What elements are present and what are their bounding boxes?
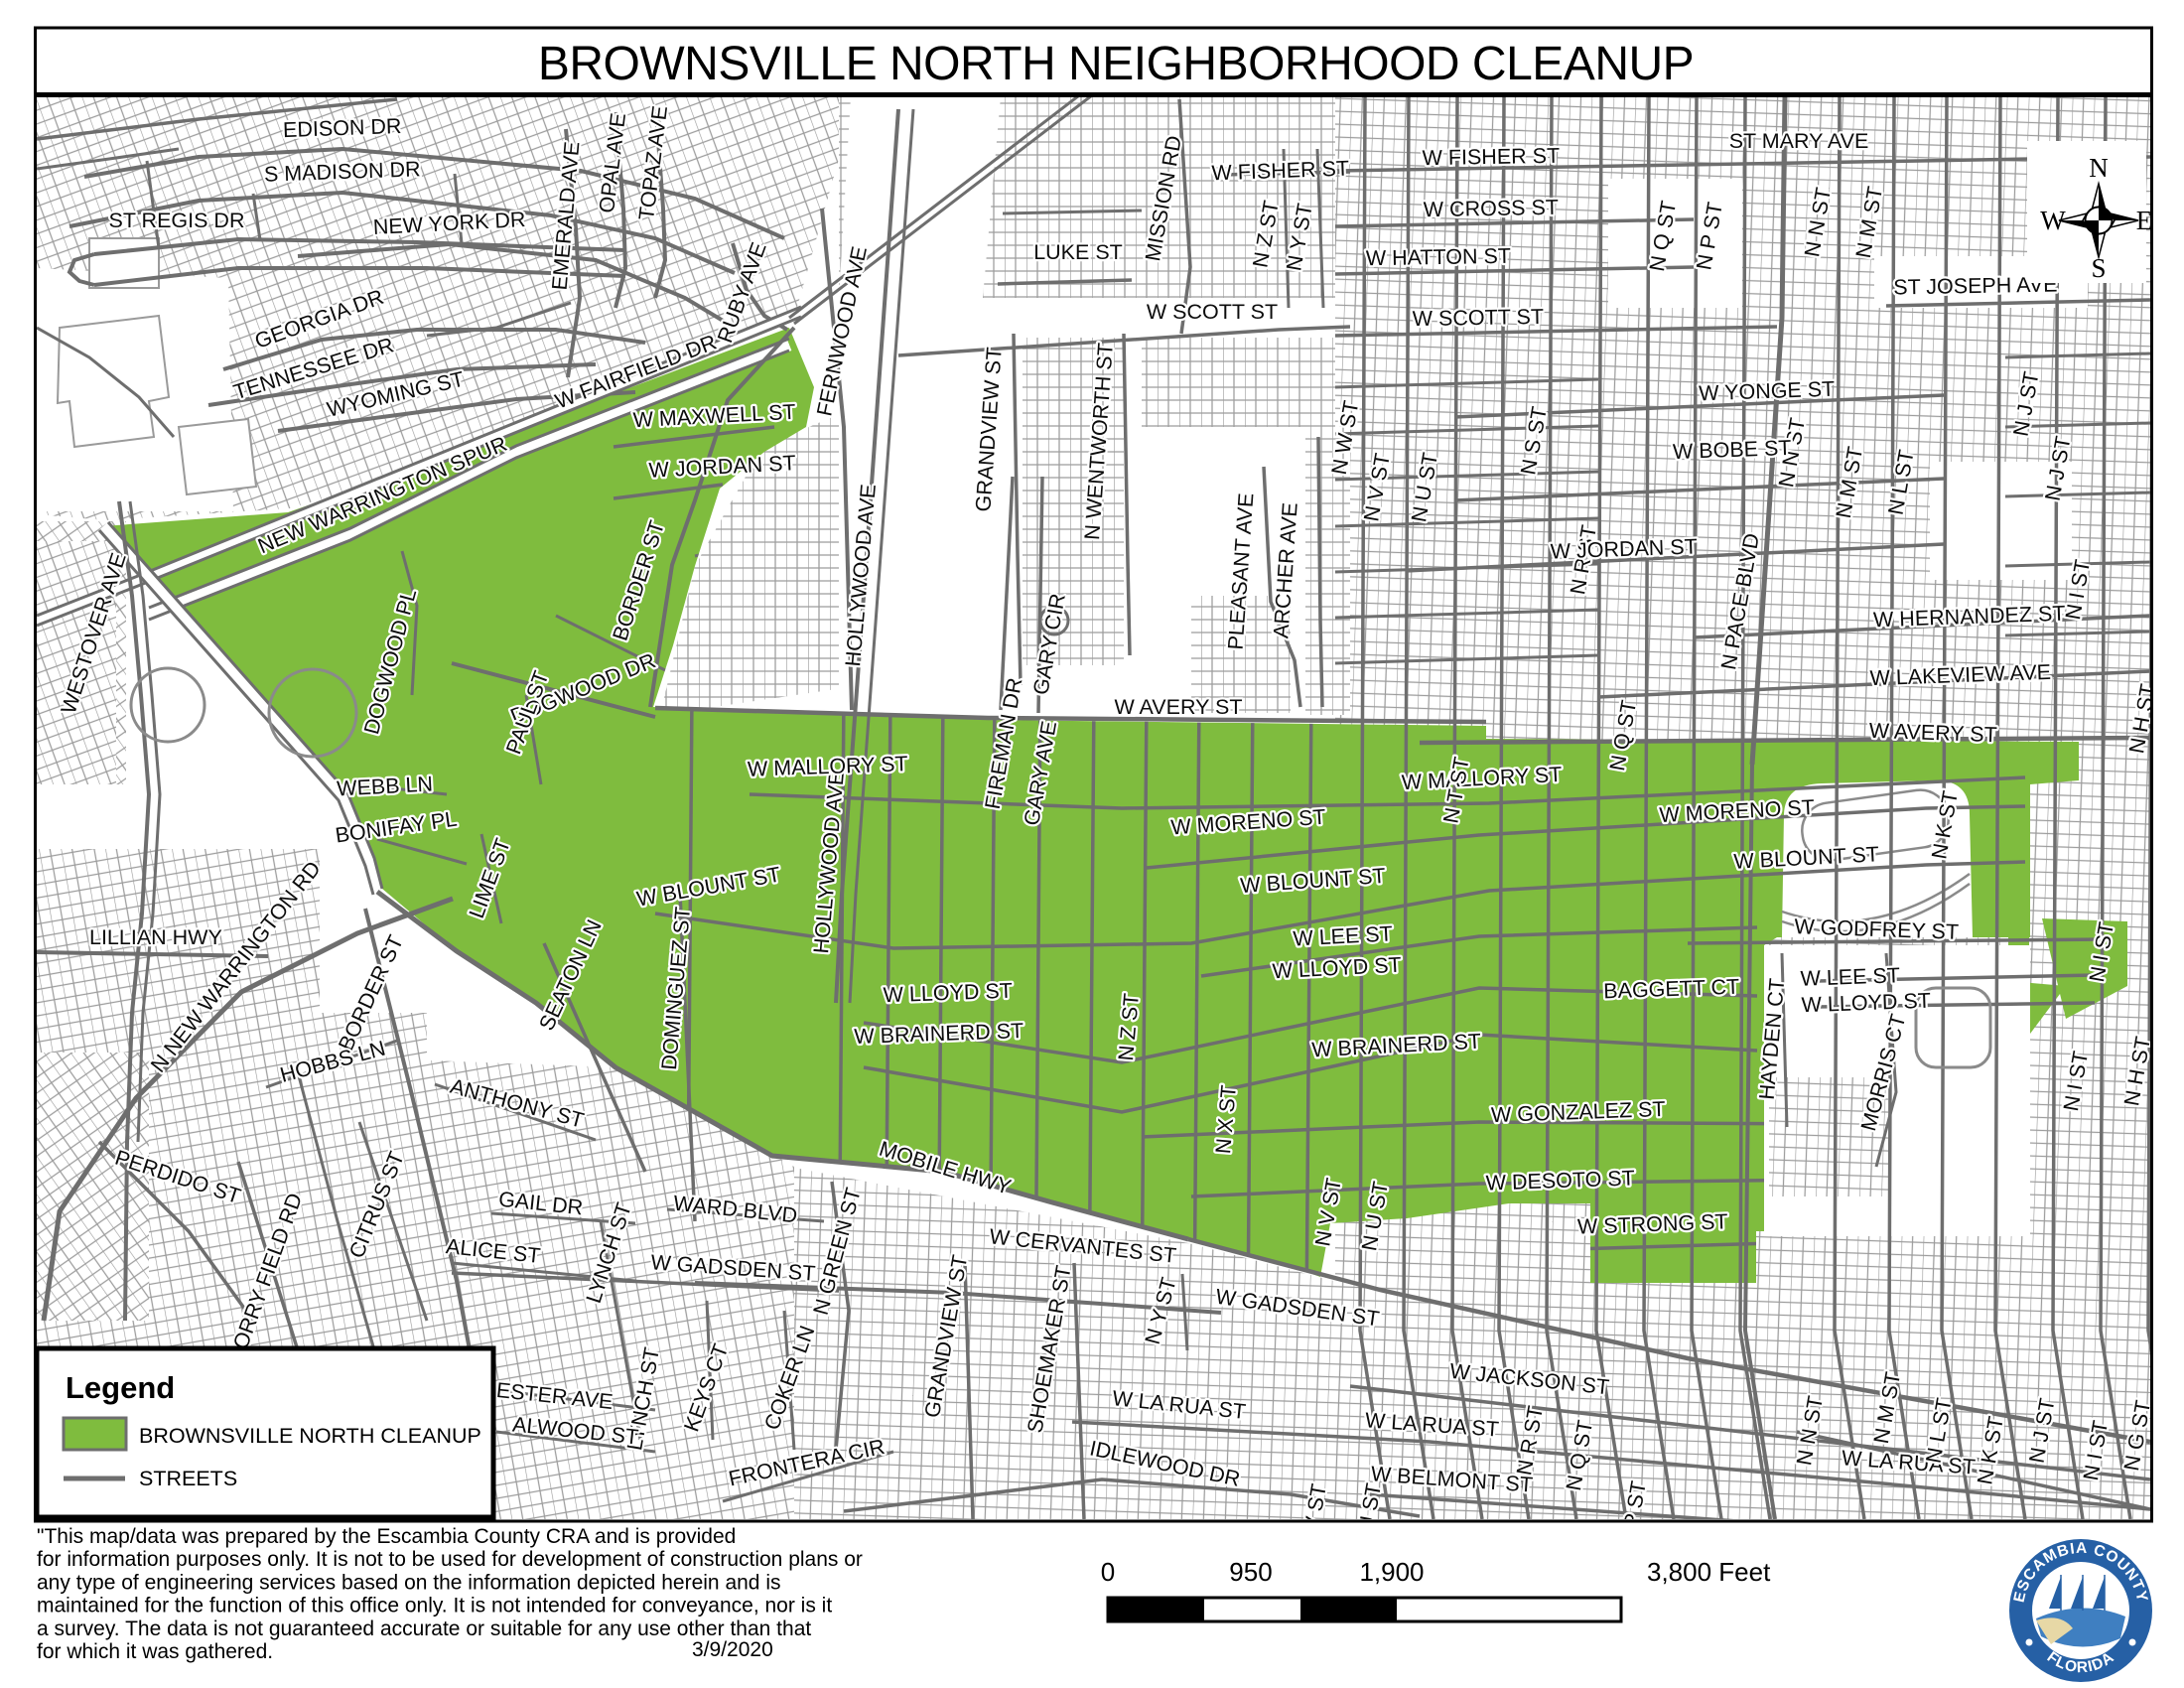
- svg-text:S: S: [2091, 253, 2106, 283]
- svg-text:N: N: [2089, 153, 2109, 183]
- svg-text:LILLIAN HWY: LILLIAN HWY: [89, 925, 222, 949]
- svg-text:W HATTON ST: W HATTON ST: [1366, 244, 1512, 271]
- svg-text:E: E: [2136, 206, 2153, 235]
- svg-text:LUKE ST: LUKE ST: [1033, 240, 1123, 264]
- svg-text:any type of engineering se: any type of engineering services based o…: [37, 1571, 780, 1594]
- svg-text:EDISON DR: EDISON DR: [283, 114, 402, 142]
- svg-text:W AVERY ST: W AVERY ST: [1868, 719, 1997, 747]
- svg-text:for which it was gathered.: for which it was gathered.: [37, 1640, 273, 1663]
- svg-text:BROWNSVILLE NORTH CLEANUP: BROWNSVILLE NORTH CLEANUP: [139, 1424, 481, 1448]
- svg-text:W YONGE ST: W YONGE ST: [1699, 377, 1836, 406]
- svg-text:W AVERY ST: W AVERY ST: [1114, 695, 1242, 719]
- svg-text:W SCOTT ST: W SCOTT ST: [1413, 305, 1545, 331]
- svg-text:ST MARY AVE: ST MARY AVE: [1729, 129, 1869, 153]
- svg-text:a survey. The data is not: a survey. The data is not guaranteed acc…: [37, 1618, 811, 1640]
- svg-text:W BOBE ST: W BOBE ST: [1673, 436, 1792, 464]
- svg-text:W FISHER ST: W FISHER ST: [1211, 157, 1349, 186]
- svg-text:0: 0: [1101, 1557, 1115, 1587]
- svg-text:950: 950: [1229, 1557, 1272, 1587]
- svg-text:3,800 Feet: 3,800 Feet: [1647, 1557, 1771, 1587]
- svg-text:WEBB LN: WEBB LN: [337, 772, 434, 800]
- svg-text:maintained for the function of: maintained for the function of this offi…: [37, 1595, 832, 1618]
- svg-text:3/9/2020: 3/9/2020: [692, 1638, 773, 1661]
- svg-text:W CROSS ST: W CROSS ST: [1424, 196, 1560, 221]
- svg-text:ST REGIS DR: ST REGIS DR: [109, 209, 245, 232]
- svg-text:W LLOYD ST: W LLOYD ST: [883, 979, 1013, 1008]
- svg-text:"This map/data was prepared: "This map/data was prepared by the Escam…: [37, 1525, 736, 1548]
- svg-text:BAGGETT CT: BAGGETT CT: [1603, 975, 1740, 1004]
- svg-text:W SCOTT ST: W SCOTT ST: [1147, 300, 1278, 324]
- svg-text:W FISHER ST: W FISHER ST: [1422, 144, 1560, 170]
- svg-text:W LLOYD ST: W LLOYD ST: [1801, 989, 1931, 1018]
- svg-text:BROWNSVILLE NORTH NEIGHBORHOOD: BROWNSVILLE NORTH NEIGHBORHOOD CLEANUP: [538, 38, 1694, 90]
- svg-text:W: W: [2040, 206, 2066, 235]
- svg-text:for information purposes only.: for information purposes only. It is not…: [37, 1548, 863, 1571]
- svg-text:STREETS: STREETS: [139, 1467, 237, 1490]
- svg-text:W LEE ST: W LEE ST: [1800, 963, 1900, 990]
- svg-text:Legend: Legend: [66, 1370, 175, 1405]
- svg-text:1,900: 1,900: [1359, 1557, 1424, 1587]
